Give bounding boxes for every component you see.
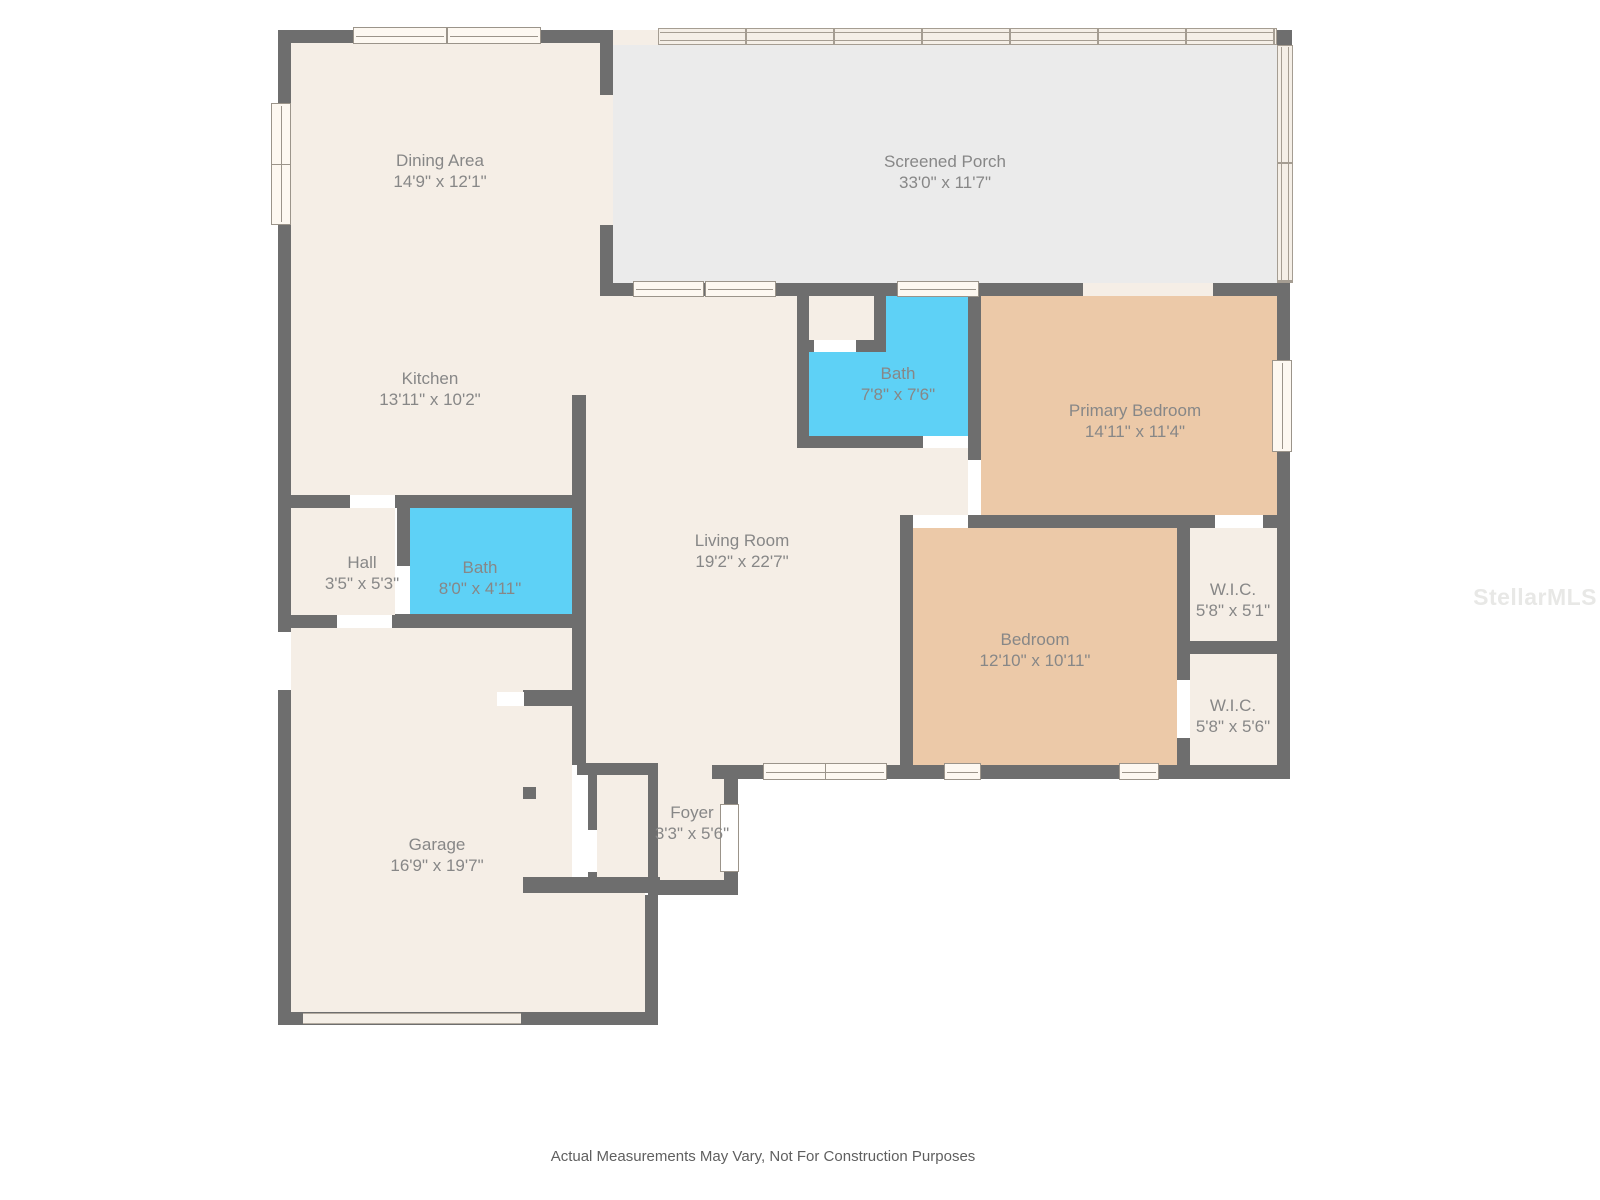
porch-screen-wall-right xyxy=(1277,45,1293,283)
wall xyxy=(797,436,923,448)
wall xyxy=(1277,283,1290,779)
room-dimensions: 16'9" x 19'7" xyxy=(390,855,483,876)
room-floor-bath-upper-a xyxy=(886,296,968,352)
room-name: Bath xyxy=(881,363,916,384)
room-label-bath-upper: Bath 7'8" x 7'6" xyxy=(861,363,935,405)
room-label-foyer: Foyer 3'3" x 5'6" xyxy=(655,802,729,844)
stellar-mls-watermark: StellarMLS xyxy=(1473,584,1597,611)
room-name: Kitchen xyxy=(402,368,459,389)
window xyxy=(633,281,704,297)
wall xyxy=(523,690,577,706)
room-dimensions: 5'8" x 5'6" xyxy=(1196,716,1270,737)
room-name: Bath xyxy=(463,557,498,578)
wall xyxy=(874,296,886,340)
wall xyxy=(278,690,291,1025)
porch-passage xyxy=(1083,283,1213,296)
door-opening xyxy=(588,830,597,872)
room-name: W.I.C. xyxy=(1210,695,1256,716)
wall xyxy=(523,787,536,799)
room-label-bedroom: Bedroom 12'10" x 10'11" xyxy=(980,629,1091,671)
wall xyxy=(278,30,291,108)
door-opening xyxy=(497,692,524,706)
room-label-wic-upper: W.I.C. 5'8" x 5'1" xyxy=(1196,579,1270,621)
room-label-primary-bedroom: Primary Bedroom 14'11" x 11'4" xyxy=(1069,400,1201,442)
room-dimensions: 3'5" x 5'3" xyxy=(325,573,399,594)
window xyxy=(353,27,447,44)
wall xyxy=(395,614,586,628)
door-opening xyxy=(1177,680,1190,738)
room-label-bath-lower: Bath 8'0" x 4'11" xyxy=(439,557,522,599)
room-dimensions: 19'2" x 22'7" xyxy=(695,551,788,572)
door-opening xyxy=(337,615,392,628)
room-dimensions: 8'0" x 4'11" xyxy=(439,578,522,599)
room-label-screened-porch: Screened Porch 33'0" x 11'7" xyxy=(884,151,1006,193)
wall xyxy=(1277,30,1292,46)
door-opening xyxy=(350,495,395,508)
room-dimensions: 14'9" x 12'1" xyxy=(393,171,486,192)
window xyxy=(1272,360,1292,452)
room-floor-garage xyxy=(291,628,572,1012)
room-label-wic-lower: W.I.C. 5'8" x 5'6" xyxy=(1196,695,1270,737)
room-floor-dining-kitchen xyxy=(291,43,600,495)
room-dimensions: 14'11" x 11'4" xyxy=(1085,421,1185,442)
room-name: Garage xyxy=(409,834,466,855)
disclaimer-text: Actual Measurements May Vary, Not For Co… xyxy=(0,1148,1526,1165)
porch-screen-wall-top xyxy=(658,28,1277,45)
door-opening xyxy=(814,340,856,352)
wall-gap xyxy=(613,30,658,45)
wall xyxy=(797,296,809,448)
wall xyxy=(395,495,586,508)
room-label-garage: Garage 16'9" x 19'7" xyxy=(390,834,483,876)
wall xyxy=(523,877,660,893)
room-name: Screened Porch xyxy=(884,151,1006,172)
room-dimensions: 12'10" x 10'11" xyxy=(980,650,1091,671)
door-opening xyxy=(1215,515,1263,528)
wall xyxy=(1177,641,1290,654)
window xyxy=(447,27,541,44)
room-dimensions: 5'8" x 5'1" xyxy=(1196,600,1270,621)
door-opening xyxy=(923,436,968,448)
window xyxy=(1119,763,1159,780)
door-opening xyxy=(278,632,291,690)
room-floor-garage-right xyxy=(572,893,645,1012)
wall xyxy=(278,495,353,508)
room-dimensions: 33'0" x 11'7" xyxy=(899,172,991,193)
window xyxy=(705,281,776,297)
room-name: Living Room xyxy=(695,530,790,551)
garage-door xyxy=(303,1013,521,1024)
room-name: Hall xyxy=(347,552,376,573)
closet-floor xyxy=(597,775,648,877)
room-label-kitchen: Kitchen 13'11" x 10'2" xyxy=(379,368,480,410)
room-name: Dining Area xyxy=(396,150,484,171)
window xyxy=(763,763,887,780)
wall xyxy=(577,763,658,775)
dining-porch-passage xyxy=(600,95,613,225)
room-name: Foyer xyxy=(670,802,713,823)
room-label-hall: Hall 3'5" x 5'3" xyxy=(325,552,399,594)
wall xyxy=(572,395,586,765)
window xyxy=(271,103,291,225)
room-label-dining: Dining Area 14'9" x 12'1" xyxy=(393,150,486,192)
wall xyxy=(648,880,738,895)
room-name: Bedroom xyxy=(1001,629,1070,650)
floor-plan: Dining Area 14'9" x 12'1" Screened Porch… xyxy=(0,0,1600,1200)
wall xyxy=(645,895,658,1025)
bedroom-corridor-floor xyxy=(886,448,968,515)
wall xyxy=(600,30,613,97)
door-opening xyxy=(913,515,968,528)
room-name: W.I.C. xyxy=(1210,579,1256,600)
window xyxy=(944,763,981,780)
wall xyxy=(900,515,913,765)
room-name: Primary Bedroom xyxy=(1069,400,1201,421)
bath-vestibule-floor xyxy=(809,296,874,340)
window xyxy=(897,281,979,297)
room-dimensions: 3'3" x 5'6" xyxy=(655,823,729,844)
door-opening xyxy=(968,460,981,515)
room-label-living-room: Living Room 19'2" x 22'7" xyxy=(695,530,790,572)
wall xyxy=(278,222,291,632)
room-dimensions: 13'11" x 10'2" xyxy=(379,389,480,410)
room-dimensions: 7'8" x 7'6" xyxy=(861,384,935,405)
